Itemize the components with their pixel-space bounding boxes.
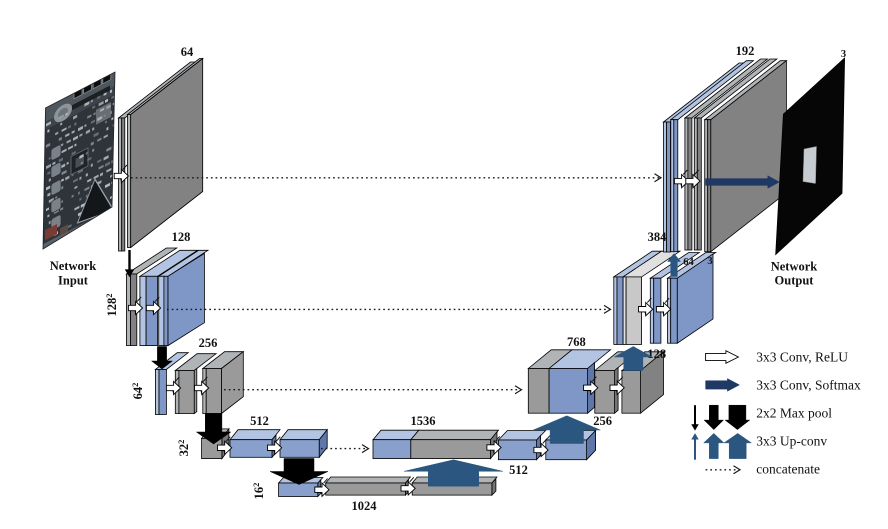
svg-text:Network: Network (771, 260, 818, 274)
svg-text:3: 3 (707, 256, 712, 267)
svg-text:162: 162 (251, 483, 266, 500)
svg-text:Input: Input (58, 274, 89, 288)
svg-text:3x3 Conv, ReLU: 3x3 Conv, ReLU (756, 350, 848, 365)
svg-text:3: 3 (841, 49, 846, 60)
svg-text:Output: Output (775, 274, 815, 288)
svg-text:3x3 Up-conv: 3x3 Up-conv (756, 434, 827, 449)
svg-text:Network: Network (50, 259, 97, 273)
svg-text:192: 192 (736, 44, 755, 58)
svg-text:concatenate: concatenate (756, 462, 820, 477)
svg-text:64: 64 (683, 257, 694, 268)
svg-text:128: 128 (172, 230, 191, 244)
svg-text:2x2 Max pool: 2x2 Max pool (756, 406, 832, 421)
svg-text:642: 642 (130, 383, 145, 400)
svg-text:768: 768 (567, 335, 586, 349)
svg-text:384: 384 (648, 230, 668, 244)
svg-text:322: 322 (176, 440, 191, 457)
svg-text:1536: 1536 (411, 414, 436, 428)
svg-text:1282: 1282 (104, 294, 119, 317)
svg-text:256: 256 (199, 336, 218, 350)
svg-text:3x3 Conv, Softmax: 3x3 Conv, Softmax (756, 378, 861, 393)
svg-text:64: 64 (181, 45, 194, 59)
svg-text:1024: 1024 (352, 499, 378, 513)
svg-text:512: 512 (250, 414, 269, 428)
svg-text:512: 512 (509, 463, 528, 477)
svg-text:128: 128 (647, 347, 666, 361)
svg-text:256: 256 (593, 414, 612, 428)
